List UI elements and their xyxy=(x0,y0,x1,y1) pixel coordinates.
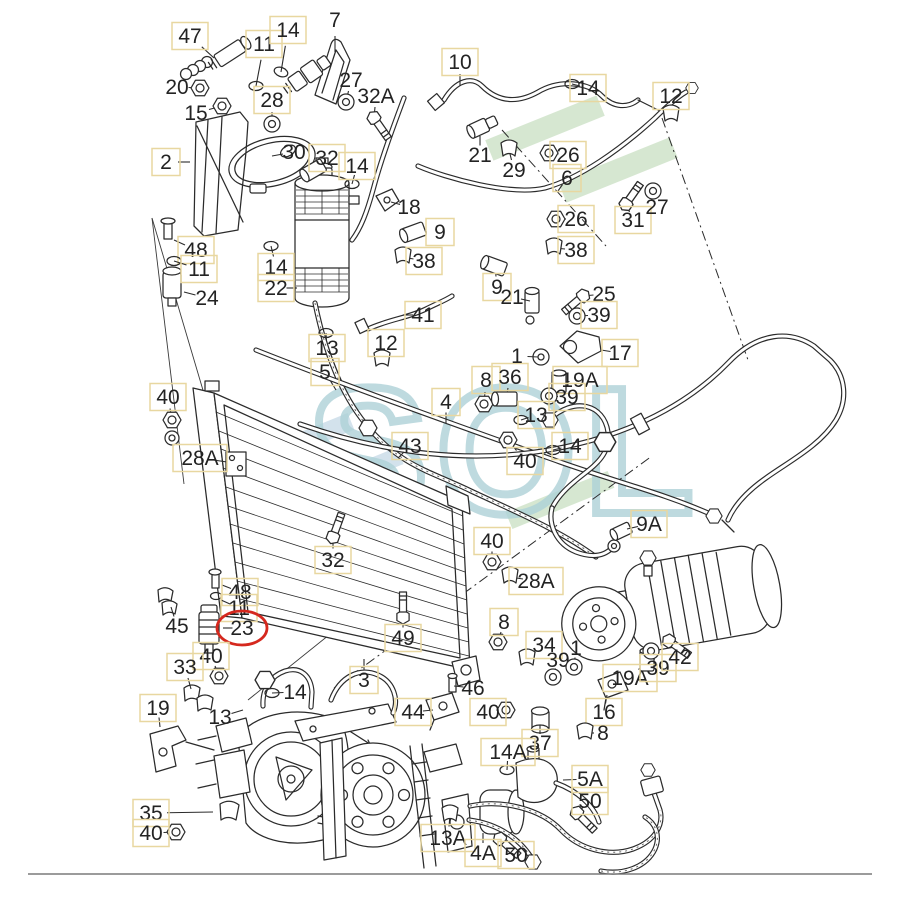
svg-text:25: 25 xyxy=(592,283,615,306)
part-glyph-fitting xyxy=(492,392,518,406)
svg-text:14: 14 xyxy=(558,435,582,458)
svg-text:32: 32 xyxy=(321,549,344,572)
svg-text:7: 7 xyxy=(329,9,341,32)
svg-text:42: 42 xyxy=(668,646,691,669)
part-glyph-clip xyxy=(395,247,411,263)
svg-text:20: 20 xyxy=(165,76,188,99)
svg-text:44: 44 xyxy=(401,701,425,724)
svg-text:14: 14 xyxy=(345,155,369,178)
part-glyph-nut xyxy=(191,80,209,96)
svg-text:19: 19 xyxy=(146,697,169,720)
part-glyph-washer xyxy=(566,659,582,675)
part-glyph-nut xyxy=(489,634,507,650)
svg-text:39: 39 xyxy=(587,304,610,327)
svg-text:8: 8 xyxy=(480,369,492,392)
svg-text:23: 23 xyxy=(230,617,253,640)
svg-text:2: 2 xyxy=(160,151,172,174)
svg-text:1: 1 xyxy=(511,345,523,368)
part-glyph-nut xyxy=(540,145,558,161)
svg-text:40: 40 xyxy=(480,530,503,553)
part-glyph-washer xyxy=(264,116,280,132)
part-glyph-washer xyxy=(569,308,585,324)
svg-text:38: 38 xyxy=(412,250,435,273)
svg-text:46: 46 xyxy=(461,677,484,700)
svg-text:33: 33 xyxy=(173,656,196,679)
pin-46-drawing xyxy=(448,674,457,693)
svg-text:49: 49 xyxy=(391,627,414,650)
svg-text:31: 31 xyxy=(621,209,644,232)
part-glyph-clip xyxy=(502,567,518,583)
svg-text:4: 4 xyxy=(440,391,452,414)
svg-text:36: 36 xyxy=(498,366,521,389)
svg-text:24: 24 xyxy=(195,287,219,310)
part-glyph-clip xyxy=(546,238,562,254)
svg-text:14: 14 xyxy=(264,256,288,279)
svg-text:39: 39 xyxy=(646,657,669,680)
svg-text:28A: 28A xyxy=(181,447,218,470)
svg-text:27: 27 xyxy=(645,196,668,219)
svg-text:30: 30 xyxy=(282,141,305,164)
svg-text:9: 9 xyxy=(434,221,446,244)
svg-text:5: 5 xyxy=(319,361,331,384)
svg-text:37: 37 xyxy=(528,732,551,755)
svg-text:38: 38 xyxy=(564,239,587,262)
svg-text:10: 10 xyxy=(448,51,471,74)
svg-text:26: 26 xyxy=(556,144,579,167)
svg-text:8: 8 xyxy=(597,722,609,745)
svg-text:39: 39 xyxy=(555,386,578,409)
part-glyph-clip xyxy=(501,140,517,156)
part-glyph-clip xyxy=(577,723,593,739)
svg-text:3: 3 xyxy=(358,669,370,692)
svg-text:45: 45 xyxy=(165,615,188,638)
svg-text:40: 40 xyxy=(156,386,179,409)
svg-text:19A: 19A xyxy=(611,667,648,690)
svg-text:21: 21 xyxy=(500,286,523,309)
svg-text:16: 16 xyxy=(592,701,615,724)
svg-text:14A: 14A xyxy=(489,741,526,764)
part-glyph-nut xyxy=(483,554,501,570)
svg-text:40: 40 xyxy=(139,822,162,845)
part-glyph-clip xyxy=(442,805,458,821)
part-glyph-nut xyxy=(499,432,517,448)
part-glyph-nut xyxy=(547,211,565,227)
svg-text:1: 1 xyxy=(570,637,582,660)
ac-parts-diagram: SOL xyxy=(0,0,900,900)
svg-text:12: 12 xyxy=(374,332,397,355)
svg-text:13A: 13A xyxy=(429,827,466,850)
clamp-35-drawing xyxy=(220,801,239,820)
svg-text:12: 12 xyxy=(659,85,682,108)
svg-text:14: 14 xyxy=(276,19,300,42)
part-glyph-nut xyxy=(213,98,231,114)
svg-text:43: 43 xyxy=(398,435,421,458)
svg-text:4A: 4A xyxy=(470,842,496,865)
svg-text:47: 47 xyxy=(178,25,201,48)
svg-text:40: 40 xyxy=(513,450,536,473)
svg-text:26: 26 xyxy=(564,208,587,231)
svg-text:50: 50 xyxy=(578,790,601,813)
part-glyph-nut xyxy=(163,412,181,428)
svg-text:41: 41 xyxy=(411,304,434,327)
bracket-2-drawing xyxy=(194,112,248,236)
svg-text:14: 14 xyxy=(283,681,307,704)
svg-text:21: 21 xyxy=(468,144,491,167)
svg-text:32A: 32A xyxy=(357,85,394,108)
svg-text:13: 13 xyxy=(315,337,338,360)
part-glyph-washer xyxy=(338,94,354,110)
svg-text:6: 6 xyxy=(561,167,573,190)
svg-text:29: 29 xyxy=(502,159,525,182)
svg-text:50: 50 xyxy=(504,844,527,867)
svg-text:17: 17 xyxy=(608,342,631,365)
svg-text:40: 40 xyxy=(476,701,499,724)
svg-text:11: 11 xyxy=(188,258,210,281)
svg-text:28A: 28A xyxy=(517,570,554,593)
svg-text:13: 13 xyxy=(208,706,231,729)
svg-text:9A: 9A xyxy=(636,513,662,536)
svg-text:22: 22 xyxy=(264,277,287,300)
svg-text:15: 15 xyxy=(184,102,207,125)
part-glyph-nut xyxy=(475,396,493,412)
svg-text:18: 18 xyxy=(397,196,420,219)
svg-text:14: 14 xyxy=(576,77,600,100)
svg-text:13: 13 xyxy=(524,404,547,427)
svg-text:32: 32 xyxy=(315,147,338,170)
svg-text:11: 11 xyxy=(253,33,275,56)
part-glyph-nut xyxy=(210,668,228,684)
diagram-canvas: SOL xyxy=(0,0,900,900)
svg-text:8: 8 xyxy=(498,611,510,634)
svg-text:28: 28 xyxy=(260,89,283,112)
